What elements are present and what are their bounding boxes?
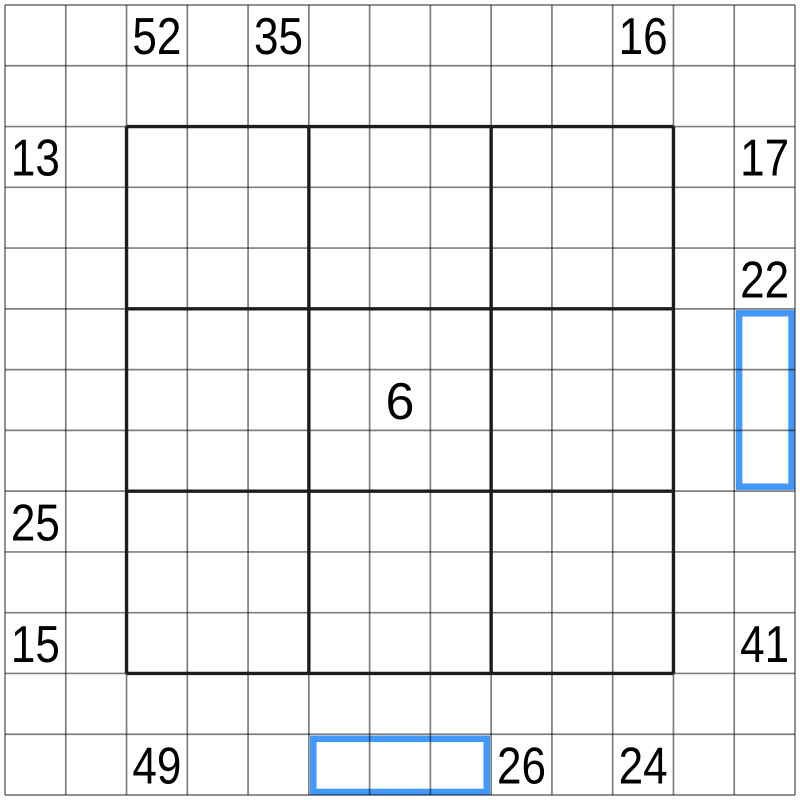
- svg-text:49: 49: [132, 737, 181, 795]
- svg-text:25: 25: [11, 494, 60, 552]
- svg-text:13: 13: [11, 130, 60, 188]
- svg-text:15: 15: [11, 616, 60, 674]
- svg-text:26: 26: [497, 737, 546, 795]
- svg-text:35: 35: [254, 8, 303, 66]
- svg-text:52: 52: [132, 8, 181, 66]
- svg-text:6: 6: [386, 373, 415, 431]
- svg-text:24: 24: [619, 737, 668, 795]
- svg-text:16: 16: [619, 8, 668, 66]
- svg-text:17: 17: [740, 130, 789, 188]
- svg-text:22: 22: [740, 251, 789, 309]
- svg-text:41: 41: [740, 616, 789, 674]
